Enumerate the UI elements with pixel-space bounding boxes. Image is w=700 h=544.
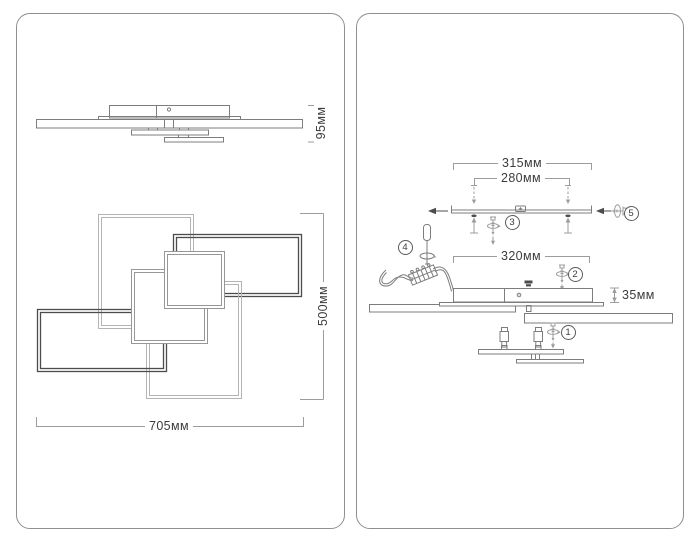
panel-dimension-views: 95мм 500мм 705мм: [16, 13, 345, 529]
dim-line-height-35: [610, 288, 619, 303]
screw-rotate-icon-1: [548, 323, 561, 349]
assembly-drawing: [357, 14, 685, 530]
mounting-bracket: [452, 206, 592, 214]
canopy-height-label: 35мм: [622, 288, 655, 302]
screw-rotate-icon-2: [557, 265, 570, 291]
step-badge-3: 3: [505, 215, 520, 230]
fixture-bottom-view: [38, 215, 302, 399]
nut-icon: [525, 281, 533, 287]
lamp-base-plates: [479, 346, 584, 364]
dimension-views-drawing: [17, 14, 346, 530]
panel-assembly-steps: 315мм 280мм 320мм 35мм 1 2 3 4 5: [356, 13, 684, 529]
terminal-block-icon: [407, 262, 437, 285]
canopy-width-label: 320мм: [497, 249, 545, 263]
bracket-width-label: 315мм: [498, 156, 546, 170]
standoff-posts: [500, 328, 543, 348]
fixture-side-view: [37, 106, 303, 143]
anchor-screw-icons: [471, 186, 571, 205]
height-dim-label: 95мм: [314, 103, 328, 144]
step-badge-4: 4: [398, 240, 413, 255]
step-badge-1: 1: [561, 325, 576, 340]
hole-spacing-label: 280мм: [497, 171, 545, 185]
screwdriver-icon: [420, 225, 436, 265]
step-badge-5: 5: [624, 206, 639, 221]
frame-center-square: [165, 252, 225, 309]
installation-sheet: 95мм 500мм 705мм: [0, 0, 700, 544]
step-badge-2: 2: [568, 267, 583, 282]
screw-rotate-icon-3: [488, 217, 501, 245]
depth-dim-label: 500мм: [316, 282, 330, 330]
bracket-fixing-screws: [470, 215, 572, 234]
width-dim-label: 705мм: [145, 419, 193, 433]
